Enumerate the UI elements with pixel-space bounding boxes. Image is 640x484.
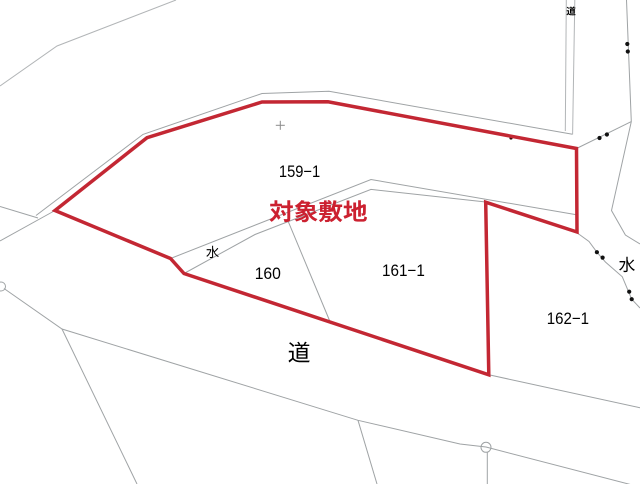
svg-text:162−1: 162−1 [547,309,589,328]
svg-text:160: 160 [255,264,281,283]
svg-text:161−1: 161−1 [382,261,425,280]
svg-text:159−1: 159−1 [279,162,320,181]
